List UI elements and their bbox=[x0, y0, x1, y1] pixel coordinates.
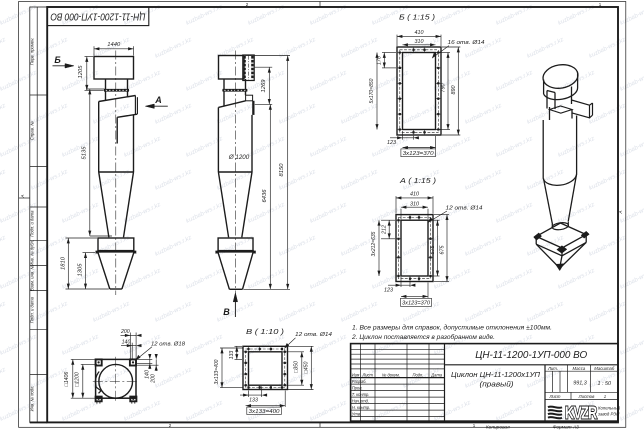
svg-text:Циклон ЦН-11-1200х1УП: Циклон ЦН-11-1200х1УП bbox=[451, 370, 541, 379]
svg-text:(правый): (правый) bbox=[480, 380, 514, 389]
svg-text:Перв. примен.: Перв. примен. bbox=[30, 37, 35, 65]
svg-text:140: 140 bbox=[144, 370, 150, 379]
svg-text:212: 212 bbox=[381, 225, 387, 235]
svg-text:200: 200 bbox=[120, 329, 130, 335]
svg-text:5135: 5135 bbox=[81, 146, 87, 160]
svg-text:1269: 1269 bbox=[261, 79, 267, 93]
svg-text:2. Циклон поставляется в разо: 2. Циклон поставляется в разобранном вид… bbox=[351, 333, 495, 341]
svg-text:Подп.: Подп. bbox=[413, 372, 424, 377]
svg-text:1305: 1305 bbox=[78, 263, 84, 277]
svg-text:3х133=400: 3х133=400 bbox=[249, 409, 280, 415]
svg-text:3х212=635: 3х212=635 bbox=[371, 231, 377, 256]
svg-text:Т. контр.: Т. контр. bbox=[352, 392, 370, 397]
svg-text:6436: 6436 bbox=[262, 189, 268, 203]
svg-text:Инв. № дубл.: Инв. № дубл. bbox=[30, 240, 35, 266]
svg-text:Инв. № подл.: Инв. № подл. bbox=[30, 385, 35, 411]
svg-text:123: 123 bbox=[387, 140, 396, 146]
svg-text:Б: Б bbox=[54, 55, 61, 65]
svg-text:1 : 50: 1 : 50 bbox=[598, 381, 612, 387]
svg-text:№ докум.: № докум. bbox=[382, 372, 400, 377]
svg-text:Копельный: Копельный bbox=[598, 405, 621, 410]
svg-text:575: 575 bbox=[430, 245, 436, 255]
svg-text:3х133=400: 3х133=400 bbox=[214, 359, 220, 384]
svg-text:Ø 1200: Ø 1200 bbox=[228, 154, 250, 161]
svg-text:В ( 1:10 ): В ( 1:10 ) bbox=[246, 327, 285, 336]
svg-text:Дата: Дата bbox=[430, 372, 443, 377]
svg-text:Разраб.: Разраб. bbox=[352, 379, 367, 384]
svg-text:Пров.: Пров. bbox=[352, 386, 363, 391]
svg-text:Справ. №: Справ. № bbox=[30, 121, 35, 140]
svg-text:790: 790 bbox=[441, 84, 447, 93]
svg-text:□1200: □1200 bbox=[74, 372, 80, 387]
svg-text:А: А bbox=[618, 210, 623, 214]
svg-text:133: 133 bbox=[249, 397, 258, 403]
svg-text:Подп. и дата: Подп. и дата bbox=[30, 210, 35, 237]
svg-text:Масштаб: Масштаб bbox=[594, 366, 615, 371]
svg-text:12 отв. Ø14: 12 отв. Ø14 bbox=[295, 332, 332, 338]
svg-text:Нач.отд.: Нач.отд. bbox=[352, 399, 369, 404]
svg-text:Изм: Изм bbox=[352, 372, 360, 377]
svg-text:KVZR: KVZR bbox=[565, 403, 597, 423]
svg-text:1440: 1440 bbox=[107, 42, 121, 48]
svg-text:133: 133 bbox=[229, 351, 235, 360]
svg-text:Формат А3: Формат А3 bbox=[553, 424, 580, 430]
svg-text:А: А bbox=[154, 95, 162, 105]
svg-text:5х170=850: 5х170=850 bbox=[369, 78, 375, 103]
svg-text:Листов: Листов bbox=[578, 394, 595, 399]
svg-text:ЦН-11-1200-1УП-000 ВО: ЦН-11-1200-1УП-000 ВО bbox=[475, 350, 587, 361]
svg-text:12 отв. Ø18: 12 отв. Ø18 bbox=[151, 341, 186, 347]
svg-text:991,3: 991,3 bbox=[573, 380, 587, 386]
svg-text:200: 200 bbox=[151, 374, 157, 384]
svg-text:Утв.: Утв. bbox=[352, 412, 361, 417]
svg-text:Масса: Масса bbox=[573, 366, 586, 371]
svg-text:Взам. инв. №: Взам. инв. № bbox=[30, 265, 35, 291]
svg-text:Копировал: Копировал bbox=[486, 424, 510, 430]
svg-text:завод РЭП: завод РЭП bbox=[597, 411, 620, 416]
svg-text:Лист: Лист bbox=[361, 372, 373, 377]
svg-text:А: А bbox=[20, 194, 25, 198]
svg-text:Подп. и дата: Подп. и дата bbox=[30, 296, 35, 323]
svg-text:410: 410 bbox=[410, 192, 419, 198]
svg-text:140: 140 bbox=[122, 339, 131, 345]
svg-text:1. Все размеры для справок, д: 1. Все размеры для справок, допустимые о… bbox=[352, 324, 552, 332]
svg-text:□350: □350 bbox=[293, 361, 299, 373]
svg-text:ЦН-11-1200-1УП-000 ВО: ЦН-11-1200-1УП-000 ВО bbox=[50, 10, 145, 21]
svg-text:310: 310 bbox=[410, 202, 419, 208]
svg-text:8150: 8150 bbox=[279, 163, 285, 177]
svg-text:Лит.: Лит. bbox=[547, 366, 558, 371]
svg-text:1810: 1810 bbox=[60, 256, 66, 270]
svg-text:410: 410 bbox=[415, 30, 424, 36]
svg-text:675: 675 bbox=[440, 245, 446, 255]
svg-text:□1406: □1406 bbox=[64, 372, 70, 387]
svg-text:890: 890 bbox=[451, 86, 457, 95]
svg-text:16 отв. Ø14: 16 отв. Ø14 bbox=[448, 40, 485, 46]
svg-text:3х123=370: 3х123=370 bbox=[403, 151, 434, 157]
svg-text:123: 123 bbox=[384, 288, 393, 294]
svg-text:310: 310 bbox=[415, 39, 424, 45]
svg-text:Б ( 1:15 ): Б ( 1:15 ) bbox=[399, 13, 436, 22]
svg-text:□450: □450 bbox=[304, 361, 310, 373]
svg-text:А ( 1:15 ): А ( 1:15 ) bbox=[399, 176, 437, 185]
svg-text:1205: 1205 bbox=[78, 65, 84, 79]
svg-text:В: В bbox=[223, 307, 230, 317]
svg-text:12 отв. Ø14: 12 отв. Ø14 bbox=[446, 206, 483, 212]
svg-text:Лист: Лист bbox=[548, 394, 560, 399]
svg-text:Н. контр.: Н. контр. bbox=[352, 405, 370, 410]
svg-text:3х123=370: 3х123=370 bbox=[402, 301, 430, 307]
